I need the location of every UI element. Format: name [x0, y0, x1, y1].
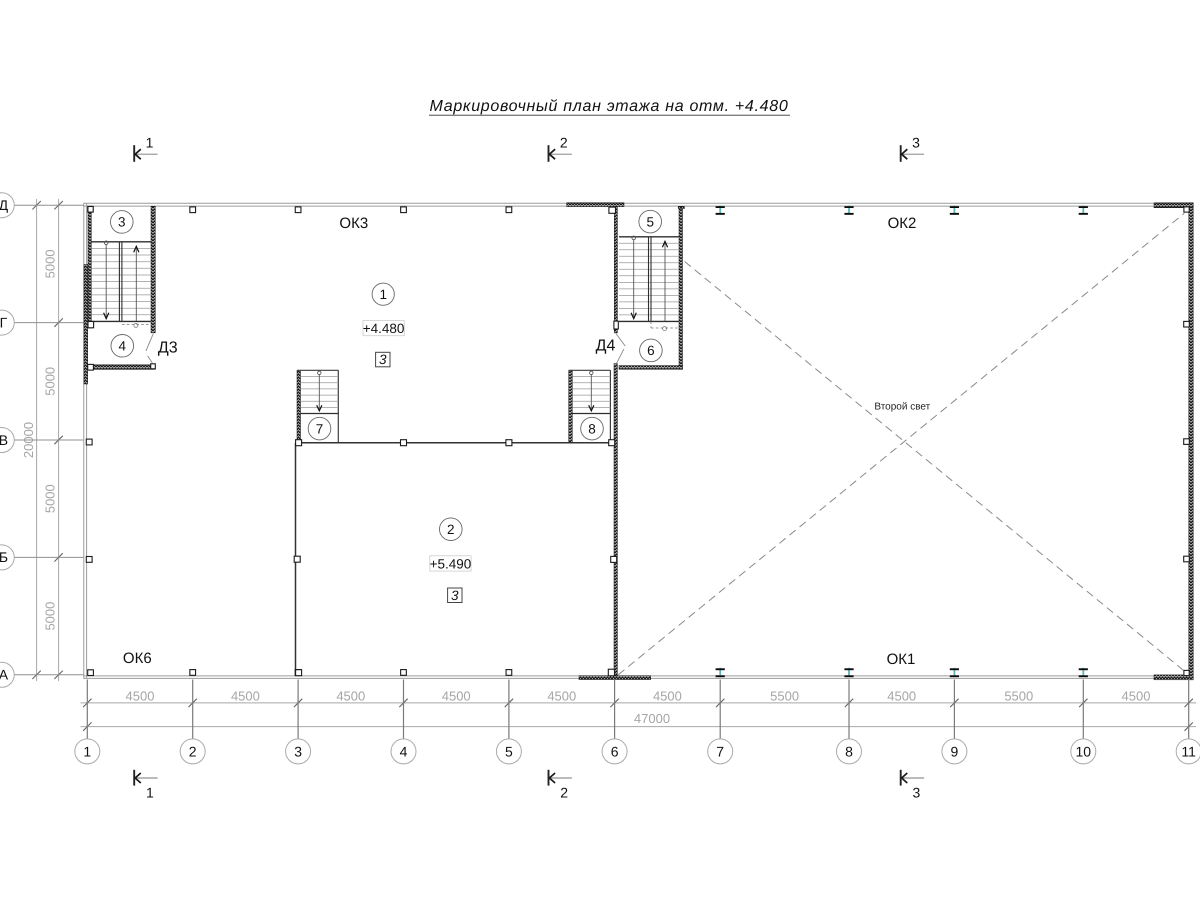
svg-text:7: 7	[316, 421, 324, 436]
svg-text:ОК1: ОК1	[887, 651, 916, 668]
svg-text:5500: 5500	[1004, 688, 1033, 703]
svg-text:ОК6: ОК6	[123, 650, 152, 667]
svg-text:1: 1	[379, 287, 387, 302]
svg-text:1: 1	[83, 743, 91, 759]
svg-text:1: 1	[146, 135, 154, 151]
svg-text:4500: 4500	[1122, 688, 1151, 703]
svg-text:В: В	[0, 432, 8, 448]
svg-text:Д4: Д4	[596, 338, 616, 355]
svg-text:7: 7	[716, 743, 724, 759]
svg-text:2: 2	[560, 135, 568, 151]
svg-text:2: 2	[447, 522, 455, 537]
svg-text:6: 6	[647, 343, 655, 358]
svg-text:3: 3	[451, 588, 459, 603]
svg-text:3: 3	[913, 784, 921, 800]
svg-text:1: 1	[146, 784, 154, 800]
svg-text:Маркировочный план этажа на от: Маркировочный план этажа на отм. +4.480	[430, 98, 789, 115]
svg-text:8: 8	[588, 421, 596, 436]
svg-text:4: 4	[400, 743, 408, 759]
svg-text:2: 2	[560, 784, 568, 800]
svg-text:5000: 5000	[42, 602, 57, 631]
svg-text:4500: 4500	[887, 688, 916, 703]
svg-text:6: 6	[611, 743, 619, 759]
svg-text:+4.480: +4.480	[363, 321, 405, 336]
svg-text:2: 2	[189, 743, 197, 759]
svg-text:3: 3	[294, 743, 302, 759]
svg-text:Б: Б	[0, 549, 8, 565]
svg-text:ОК3: ОК3	[339, 215, 368, 232]
svg-text:А: А	[0, 667, 9, 683]
svg-text:ОК2: ОК2	[888, 215, 917, 232]
svg-text:Д3: Д3	[158, 339, 178, 356]
svg-text:4: 4	[119, 339, 127, 354]
svg-text:9: 9	[951, 743, 959, 759]
svg-text:3: 3	[118, 215, 126, 230]
svg-text:Д: Д	[0, 197, 9, 213]
svg-text:4500: 4500	[126, 688, 155, 703]
svg-text:5500: 5500	[770, 688, 799, 703]
svg-text:5000: 5000	[42, 367, 57, 396]
svg-text:5000: 5000	[42, 484, 57, 513]
svg-text:8: 8	[845, 743, 853, 759]
svg-text:5: 5	[646, 214, 654, 229]
svg-text:5: 5	[505, 743, 513, 759]
svg-text:5000: 5000	[42, 249, 57, 278]
svg-text:4500: 4500	[653, 688, 682, 703]
svg-text:4500: 4500	[442, 688, 471, 703]
svg-text:4500: 4500	[231, 688, 260, 703]
svg-text:+5.490: +5.490	[430, 557, 472, 572]
svg-text:3: 3	[912, 135, 920, 151]
svg-text:Второй свет: Второй свет	[874, 401, 930, 412]
svg-text:4500: 4500	[336, 688, 365, 703]
svg-text:11: 11	[1181, 743, 1196, 759]
svg-text:Г: Г	[0, 314, 8, 330]
svg-text:4500: 4500	[547, 688, 576, 703]
svg-text:10: 10	[1076, 743, 1092, 759]
svg-text:3: 3	[379, 352, 387, 367]
svg-text:47000: 47000	[634, 711, 670, 726]
